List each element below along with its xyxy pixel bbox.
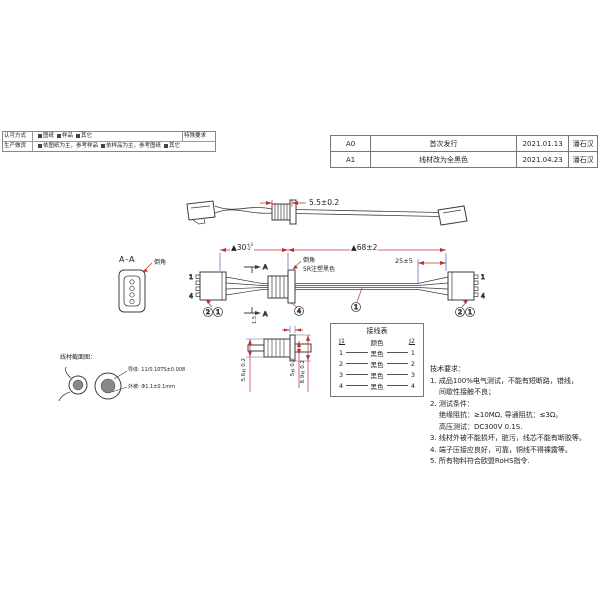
grommet — [268, 270, 295, 303]
cross-section-title: 线材截面图： — [60, 352, 96, 361]
approval-row2-options: 依图纸为主，参考样品依样品为主，参考图纸其它 — [33, 142, 215, 151]
wiring-color: 黑色 — [371, 381, 384, 391]
tech-line: 5. 所有物料符合欧盟RoHS指令. — [430, 456, 598, 468]
approval-option: 其它 — [81, 133, 92, 139]
balloon-wire: 1 — [354, 304, 358, 311]
wire-line — [387, 363, 408, 364]
balloon-left-2: 1 — [216, 309, 220, 316]
wiring-row: 4黑色4 — [331, 380, 423, 391]
tech-line: 2. 测试条件： — [430, 399, 598, 411]
overview-cable — [296, 210, 439, 217]
tech-line: 4. 端子压接应良好，可靠，铜线不得裸露等。 — [430, 445, 598, 457]
approval-row1-label: 认可方式 — [3, 132, 33, 141]
section-letter-top: A — [263, 263, 268, 271]
approval-row1-extra: 特殊要求 — [182, 132, 215, 141]
section-chamfer-label: 倒角 — [154, 257, 166, 266]
wiring-table: 接线表 J1 颜色 J2 1黑色1 2黑色2 3黑色3 4黑色4 — [330, 323, 424, 397]
dim-mid-segment: ▲68±2 — [350, 243, 378, 252]
wiring-pin-right: 1 — [411, 349, 415, 357]
wiring-color: 黑色 — [371, 348, 384, 358]
wire-cross-section — [59, 367, 127, 401]
approval-option: 样品 — [62, 133, 73, 139]
checkbox-icon — [38, 134, 42, 138]
connector-right — [448, 272, 478, 300]
revision-date: 2021.01.13 — [516, 136, 569, 152]
wiring-table-header: J1 颜色 J2 — [331, 336, 423, 347]
pin-right-top: 1 — [481, 274, 485, 281]
wiring-row: 3黑色3 — [331, 369, 423, 380]
pin-numbers: 1 4 1 4 A A — [189, 263, 485, 318]
wiring-col-j2: J2 — [409, 337, 415, 347]
tech-line: 高压测试：DC300V 0.1S. — [430, 422, 598, 434]
overview-connector-left — [187, 201, 215, 224]
section-cut-marks — [244, 267, 257, 313]
wiring-pin-left: 2 — [339, 360, 343, 368]
wiring-pin-right: 2 — [411, 360, 415, 368]
wire-line — [346, 374, 367, 375]
technical-requirements: 技术要求： 1. 成品100%电气测试，不能有短断路，错线， 间歇性接触不良； … — [430, 364, 598, 468]
wires-left-fan — [226, 277, 262, 295]
detail-dim-right: 8.9±0.2 — [300, 360, 306, 384]
wire-line — [346, 352, 367, 353]
approval-row-2: 生产做货 依图纸为主，参考样品依样品为主，参考图纸其它 — [3, 142, 215, 151]
approval-option: 其它 — [169, 143, 180, 149]
overview-grommet — [272, 200, 296, 224]
section-letter-bottom: A — [263, 310, 268, 318]
cross-section-jacket-label: 外被: Φ1.1±0.1mm — [128, 383, 175, 390]
wires-right-fan — [418, 277, 448, 295]
revision-desc: 线材改为全黑色 — [371, 152, 517, 168]
drawing-canvas: 2 1 4 1 2 1 1 4 1 4 A A — [0, 0, 600, 600]
dim-left-tolerance: +3-2 — [246, 244, 253, 252]
pin-left-bottom: 4 — [189, 293, 193, 300]
revision-table: A0 首次发行 2021.01.13 潘石汉 A1 线材改为全黑色 2021.0… — [330, 135, 598, 168]
wiring-table-title: 接线表 — [331, 326, 423, 336]
tech-line: 1. 成品100%电气测试，不能有短断路，错线， — [430, 376, 598, 388]
checkbox-icon — [164, 144, 168, 148]
balloon-right-2: 1 — [468, 309, 472, 316]
wire-line — [387, 385, 408, 386]
section-view-aa — [119, 270, 145, 312]
approval-table: 认可方式 图纸样品其它 特殊要求 生产做货 依图纸为主，参考样品依样品为主，参考… — [2, 131, 216, 152]
balloon-callouts: 2 1 4 1 2 1 — [204, 303, 475, 317]
approval-row1-options: 图纸样品其它 — [33, 132, 182, 141]
wiring-row: 1黑色1 — [331, 347, 423, 358]
detail-dim-mid: 5±0.2 — [290, 358, 296, 376]
revision-author: 潘石汉 — [569, 152, 598, 168]
mold-label: 5R注塑黑色 — [303, 264, 335, 273]
wire-line — [346, 363, 367, 364]
wire-line — [346, 385, 367, 386]
approval-option: 依样品为主，参考图纸 — [106, 143, 161, 149]
chamfer-label: 倒角 — [303, 255, 315, 264]
balloon-left-1: 2 — [206, 309, 210, 316]
overview-twisted-wires — [215, 206, 272, 213]
checkbox-icon — [57, 134, 61, 138]
wiring-pin-left: 1 — [339, 349, 343, 357]
balloon-grommet: 4 — [297, 308, 301, 315]
tolerance-lower: -2 — [246, 248, 253, 252]
approval-option: 依图纸为主，参考样品 — [43, 143, 98, 149]
approval-option: 图纸 — [43, 133, 54, 139]
wiring-color: 黑色 — [371, 370, 384, 380]
dim-left-segment: ▲30+3-2 — [230, 243, 254, 252]
wiring-row: 2黑色2 — [331, 358, 423, 369]
wire-line — [387, 352, 408, 353]
wiring-pin-left: 3 — [339, 371, 343, 379]
wiring-col-color: 颜色 — [371, 337, 384, 347]
revision-author: 潘石汉 — [569, 136, 598, 152]
balloon-right-1: 2 — [458, 309, 462, 316]
wire-line — [387, 374, 408, 375]
dim-left-value: ▲30 — [231, 243, 246, 252]
wiring-pin-right: 3 — [411, 371, 415, 379]
tech-line: 3. 线材外被不能损坏，脏污，线芯不能有断胶等。 — [430, 433, 598, 445]
revision-row: A1 线材改为全黑色 2021.04.23 潘石汉 — [331, 152, 598, 168]
checkbox-icon — [101, 144, 105, 148]
pin-left-top: 1 — [189, 274, 193, 281]
revision-row: A0 首次发行 2021.01.13 潘石汉 — [331, 136, 598, 152]
tech-line: 间歇性接触不良； — [430, 387, 598, 399]
cross-section-conductor-label: 导体: 11/0.10TS±0.008 — [128, 366, 185, 373]
tech-title: 技术要求： — [430, 364, 598, 376]
wiring-col-j1: J1 — [339, 337, 345, 347]
detail-dim-left: 5.6±0.2 — [241, 358, 247, 382]
pin-right-bottom: 4 — [481, 293, 485, 300]
revision-date: 2021.04.23 — [516, 152, 569, 168]
dim-grommet-length: 5.5±0.2 — [308, 198, 340, 207]
dim-right-segment: 25±5 — [394, 257, 414, 265]
detail-dim-top: 1.5 — [252, 316, 258, 324]
connector-left — [196, 272, 226, 300]
section-view-title: A-A — [119, 255, 135, 264]
wiring-color: 黑色 — [371, 359, 384, 369]
revision-code: A1 — [331, 152, 371, 168]
overview-connector-right — [438, 206, 467, 225]
checkbox-icon — [38, 144, 42, 148]
checkbox-icon — [76, 134, 80, 138]
approval-row-1: 认可方式 图纸样品其它 特殊要求 — [3, 132, 215, 142]
wiring-pin-left: 4 — [339, 382, 343, 390]
tech-line: 绝缘阻抗：≥10MΩ, 导通阻抗：≤3Ω。 — [430, 410, 598, 422]
drawing-sheet: 2 1 4 1 2 1 1 4 1 4 A A — [0, 0, 600, 600]
revision-code: A0 — [331, 136, 371, 152]
wiring-pin-right: 4 — [411, 382, 415, 390]
approval-row2-label: 生产做货 — [3, 142, 33, 151]
revision-desc: 首次发行 — [371, 136, 517, 152]
